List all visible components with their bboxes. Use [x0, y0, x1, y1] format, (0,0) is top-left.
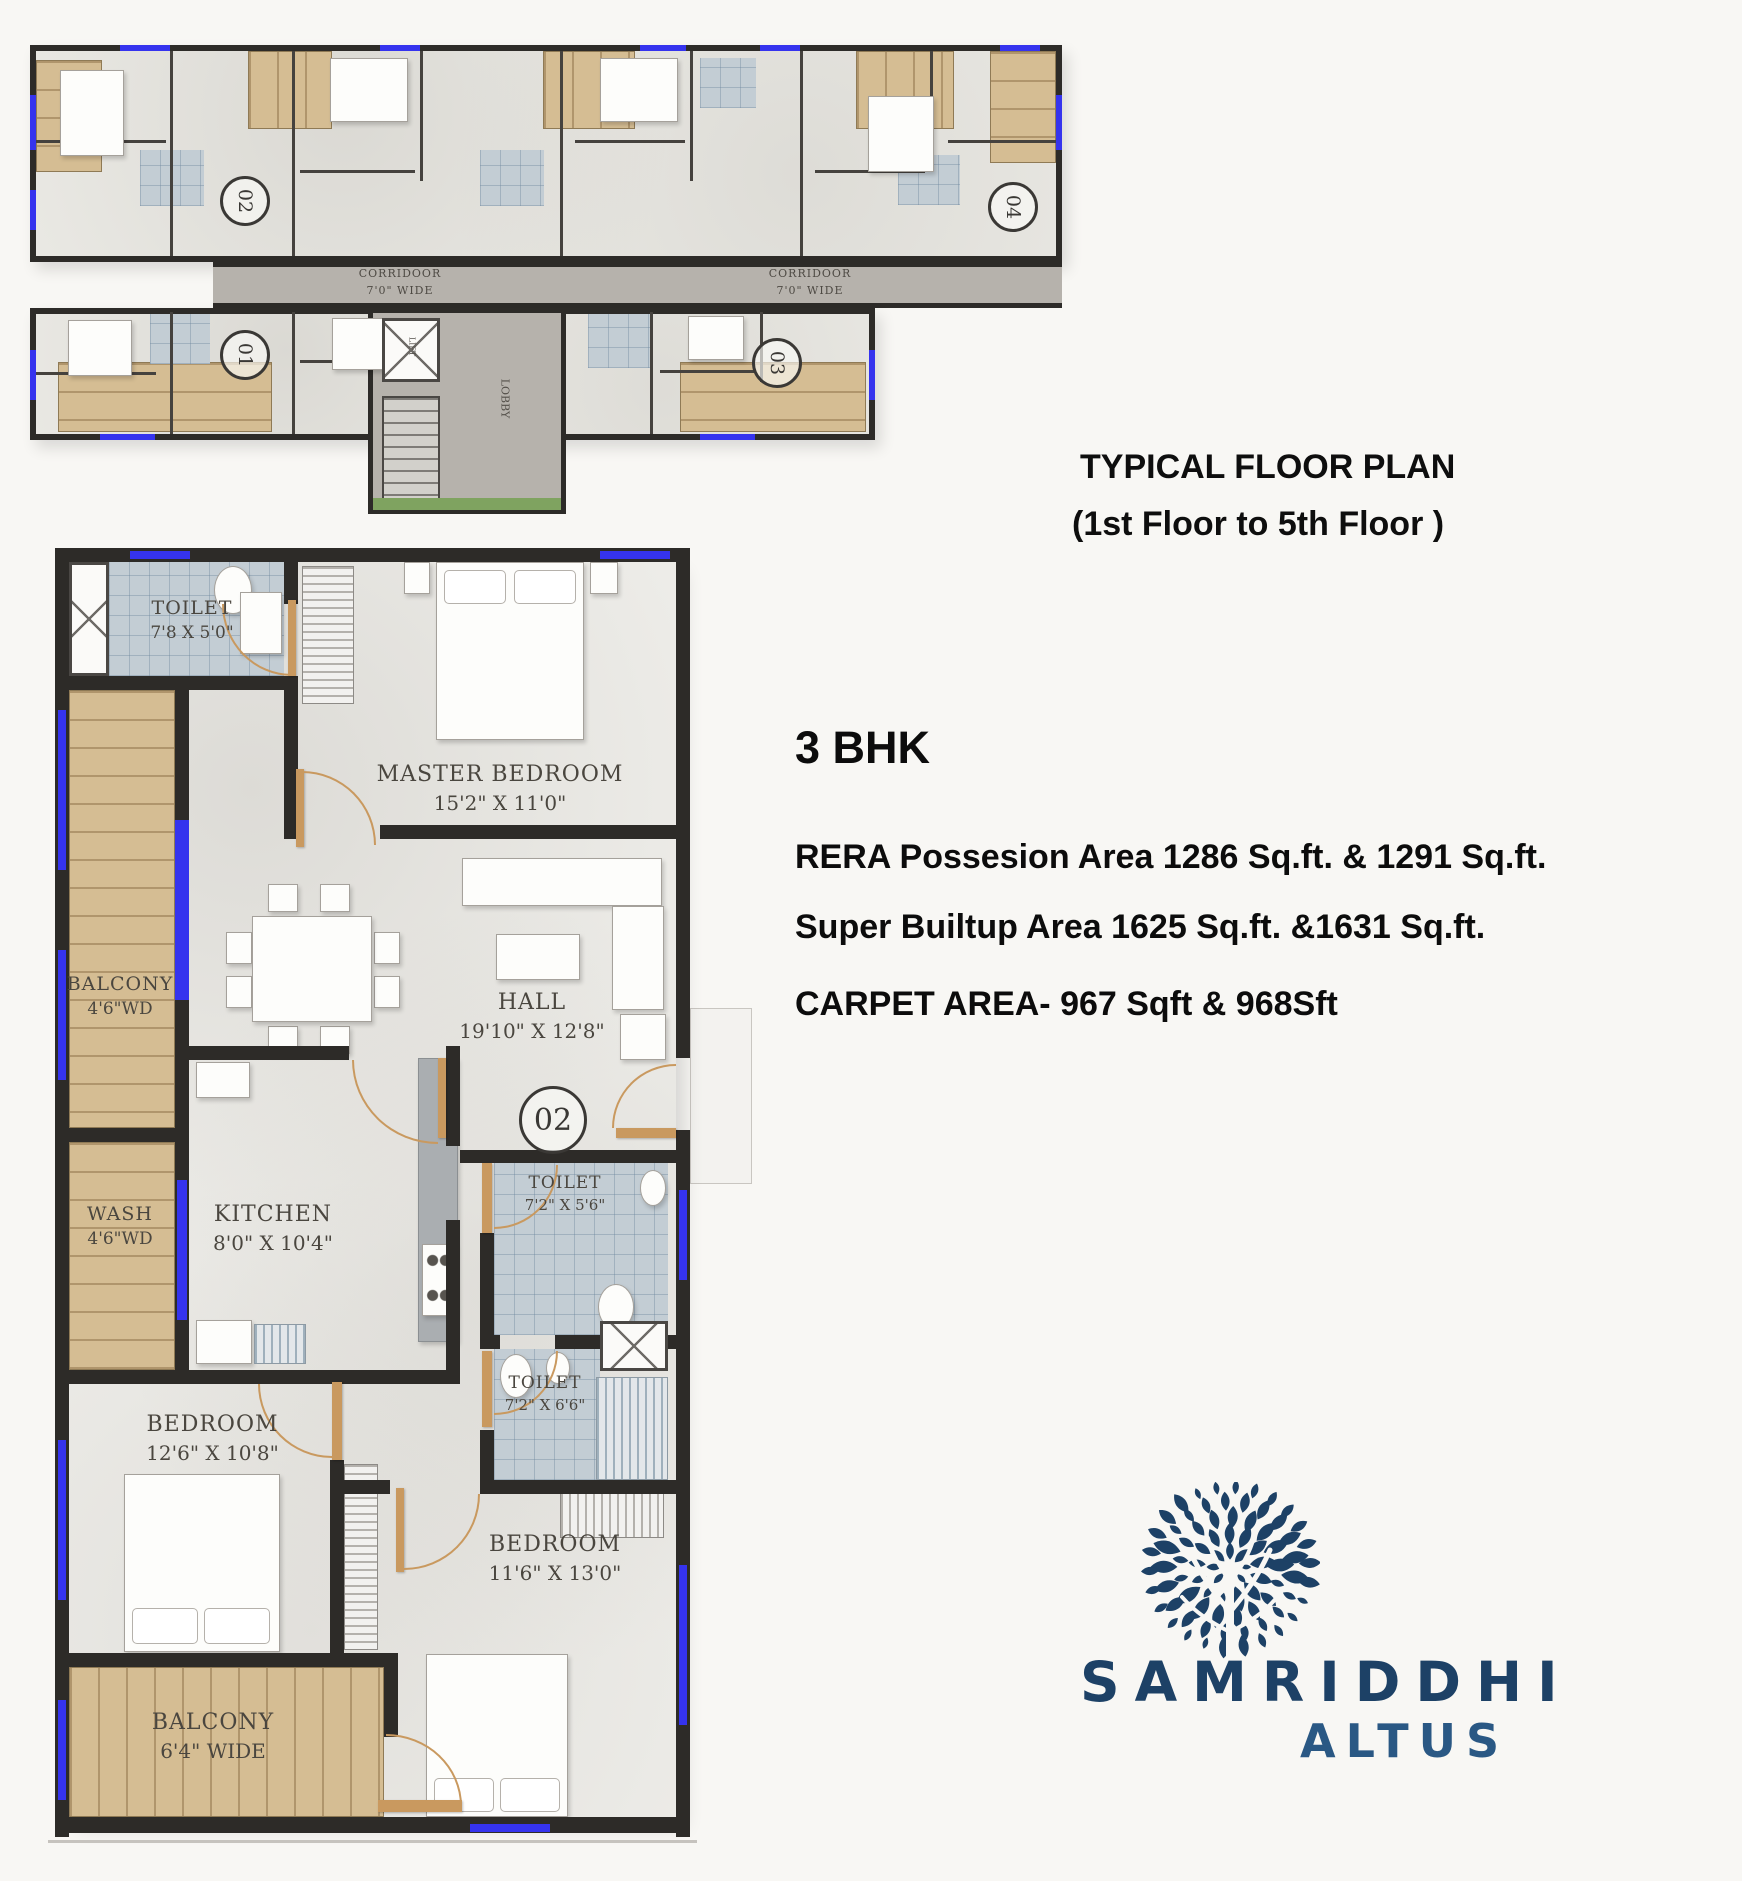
- window: [700, 434, 755, 440]
- room-name: KITCHEN: [178, 1200, 368, 1230]
- tile-floor: [700, 58, 756, 108]
- window: [640, 45, 686, 51]
- corridor-label-text: CORRIDOOR: [769, 267, 851, 280]
- plinth-line: [48, 1840, 697, 1843]
- room-label-toilet-2: TOILET 7'2" X 5'6": [490, 1172, 640, 1215]
- pillow: [514, 570, 576, 604]
- window: [600, 551, 670, 559]
- dining-table: [688, 316, 744, 360]
- pillow: [500, 1778, 560, 1812]
- bed: [868, 96, 934, 172]
- wall: [560, 51, 563, 256]
- window: [58, 710, 66, 870]
- bed: [600, 58, 678, 122]
- wall: [800, 51, 803, 256]
- wall: [292, 312, 295, 434]
- corridor-label: CORRIDOOR 7'0" WIDE: [330, 266, 470, 299]
- room-label-toilet-3: TOILET 7'2" X 6'6": [470, 1372, 620, 1415]
- room-name: BALCONY: [55, 972, 185, 998]
- nightstand: [404, 562, 430, 594]
- wall: [380, 825, 676, 839]
- wardrobe: [302, 566, 354, 704]
- unit-number-text: 03: [766, 351, 788, 375]
- pillow: [204, 1608, 270, 1644]
- stairs: [382, 396, 440, 500]
- window: [470, 1824, 550, 1832]
- wall: [284, 562, 298, 604]
- wash-deck: [69, 1142, 175, 1370]
- room-label-balcony-1: BALCONY 4'6"WD: [55, 972, 185, 1021]
- carpet-area-line: CARPET AREA- 967 Sqft & 968Sft: [795, 985, 1338, 1024]
- wall: [384, 1653, 398, 1737]
- wall: [55, 1653, 398, 1667]
- unit-number-text: 02: [234, 189, 256, 213]
- wall: [948, 140, 1056, 143]
- room-name: BALCONY: [118, 1708, 308, 1738]
- duct-shaft: [600, 1321, 668, 1371]
- bed: [68, 320, 132, 376]
- door-panel: [396, 1488, 404, 1572]
- room-dim: 12'6" X 10'8": [95, 1440, 330, 1467]
- wall: [175, 1000, 189, 1140]
- room-dim: 8'0" X 10'4": [178, 1230, 368, 1257]
- wall: [660, 370, 755, 373]
- door-panel: [332, 1382, 342, 1460]
- wall: [300, 170, 415, 173]
- wall: [480, 1430, 494, 1480]
- entrance-door-panel: [616, 1128, 676, 1138]
- window: [760, 45, 800, 51]
- corridor-width-text: 7'0" WIDE: [366, 284, 433, 297]
- unit-number-01: 01: [220, 330, 270, 380]
- room-label-wash: WASH 4'6"WD: [58, 1202, 182, 1251]
- chair: [226, 932, 252, 964]
- window: [30, 190, 36, 230]
- room-label-hall: HALL 19'10" X 12'8": [402, 988, 662, 1045]
- pillow: [132, 1608, 198, 1644]
- room-dim: 19'10" X 12'8": [402, 1018, 662, 1045]
- room-dim: 11'6" X 13'0": [425, 1560, 685, 1587]
- room-dim: 4'6"WD: [58, 1228, 182, 1251]
- room-name: HALL: [402, 988, 662, 1018]
- chair: [226, 976, 252, 1008]
- chair: [374, 976, 400, 1008]
- window: [679, 1565, 687, 1725]
- floorplan-flyer: LOBBY LIFT CORRIDOOR 7'0" WIDE CORRIDOOR…: [0, 0, 1742, 1881]
- droplet-tree-logo-icon: [1140, 1482, 1320, 1672]
- plan-title: TYPICAL FLOOR PLAN: [1080, 448, 1455, 487]
- window: [380, 45, 420, 51]
- bed: [330, 58, 408, 122]
- room-name: TOILET: [470, 1372, 620, 1395]
- window: [120, 45, 170, 51]
- tile-floor: [480, 150, 544, 206]
- nightstand: [590, 562, 618, 594]
- wall: [420, 51, 423, 181]
- wall: [575, 140, 685, 143]
- balcony-deck: [69, 690, 175, 1128]
- unit-number-text: 01: [234, 343, 256, 367]
- room-label-bedroom-2: BEDROOM 11'6" X 13'0": [425, 1530, 685, 1587]
- wall: [69, 1128, 189, 1142]
- wall: [650, 312, 653, 434]
- chair: [268, 884, 298, 912]
- room-name: BEDROOM: [425, 1530, 685, 1560]
- room-name: TOILET: [102, 596, 282, 622]
- wall: [292, 51, 295, 256]
- wall: [170, 312, 173, 434]
- wall: [480, 1335, 500, 1349]
- window: [1000, 45, 1040, 51]
- window: [130, 551, 190, 559]
- washbasin: [640, 1170, 666, 1206]
- corridor-label: CORRIDOOR 7'0" WIDE: [740, 266, 880, 299]
- coffee-table: [496, 934, 580, 980]
- room-dim: 15'2" X 11'0": [330, 790, 670, 817]
- window: [30, 350, 36, 400]
- corridor-width-text: 7'0" WIDE: [776, 284, 843, 297]
- room-label-kitchen: KITCHEN 8'0" X 10'4": [178, 1200, 368, 1257]
- tile-floor: [150, 314, 210, 364]
- window: [869, 350, 875, 400]
- rera-area-line: RERA Possesion Area 1286 Sq.ft. & 1291 S…: [795, 838, 1546, 877]
- room-name: MASTER BEDROOM: [330, 760, 670, 790]
- kitchen-shelf: [196, 1062, 250, 1098]
- room-name: BEDROOM: [95, 1410, 330, 1440]
- wall: [55, 1370, 460, 1384]
- wall: [460, 1150, 690, 1163]
- entrance-landing: [690, 1008, 752, 1184]
- brand-name: SAMRIDDHI: [1080, 1650, 1573, 1714]
- lift-label: LIFT: [408, 330, 417, 364]
- room-dim: 7'8 X 5'0": [102, 622, 282, 645]
- wall: [330, 1480, 390, 1494]
- wall: [690, 51, 693, 181]
- wall: [446, 1220, 460, 1384]
- unit-number-03: 03: [752, 338, 802, 388]
- bhk-heading: 3 BHK: [795, 722, 930, 774]
- wall: [175, 690, 189, 820]
- room-label-bedroom-1: BEDROOM 12'6" X 10'8": [95, 1410, 330, 1467]
- pillow: [444, 570, 506, 604]
- wall: [55, 676, 298, 690]
- unit-number-02: 02: [220, 176, 270, 226]
- room-label-master-bedroom: MASTER BEDROOM 15'2" X 11'0": [330, 760, 670, 817]
- tile-floor: [588, 314, 650, 368]
- room-label-balcony-2: BALCONY 6'4" WIDE: [118, 1708, 308, 1765]
- room-dim: 7'2" X 5'6": [490, 1195, 640, 1215]
- brand-subname: ALTUS: [1300, 1714, 1509, 1768]
- window: [679, 1190, 687, 1280]
- wall: [480, 1480, 690, 1494]
- super-builtup-line: Super Builtup Area 1625 Sq.ft. &1631 Sq.…: [795, 908, 1485, 947]
- entrance-lawn: [373, 498, 561, 510]
- dining-table: [252, 916, 372, 1022]
- wall: [480, 1233, 494, 1335]
- lobby-label: LOBBY: [499, 354, 512, 444]
- wall: [55, 1817, 690, 1833]
- door-panel: [438, 1058, 446, 1138]
- plan-subtitle: (1st Floor to 5th Floor ): [1072, 505, 1444, 544]
- wall: [446, 1046, 460, 1146]
- room-label-toilet-1: TOILET 7'8 X 5'0": [102, 596, 282, 645]
- room-dim: 6'4" WIDE: [118, 1738, 308, 1765]
- bed: [60, 70, 124, 156]
- wall: [189, 1046, 349, 1060]
- window: [30, 95, 36, 150]
- balcony-deck: [248, 51, 332, 129]
- corridor-label-text: CORRIDOOR: [359, 267, 441, 280]
- room-dim: 4'6"WD: [55, 998, 185, 1021]
- room-name: WASH: [58, 1202, 182, 1228]
- drainboard: [254, 1324, 306, 1364]
- chair: [320, 884, 350, 912]
- sink: [196, 1320, 252, 1364]
- window: [100, 434, 155, 440]
- unit-number-04: 04: [988, 182, 1038, 232]
- sofa: [462, 858, 662, 906]
- wall: [676, 548, 690, 1058]
- unit-number-badge: 02: [519, 1086, 587, 1154]
- room-dim: 7'2" X 6'6": [470, 1395, 620, 1415]
- unit-number-text: 04: [1002, 195, 1024, 219]
- unit-number-text: 02: [534, 1103, 572, 1138]
- room-name: TOILET: [490, 1172, 640, 1195]
- window: [1056, 95, 1062, 150]
- window: [58, 1700, 66, 1800]
- wall: [170, 51, 173, 256]
- chair: [374, 932, 400, 964]
- balcony-deck: [990, 51, 1056, 163]
- window: [58, 1440, 66, 1600]
